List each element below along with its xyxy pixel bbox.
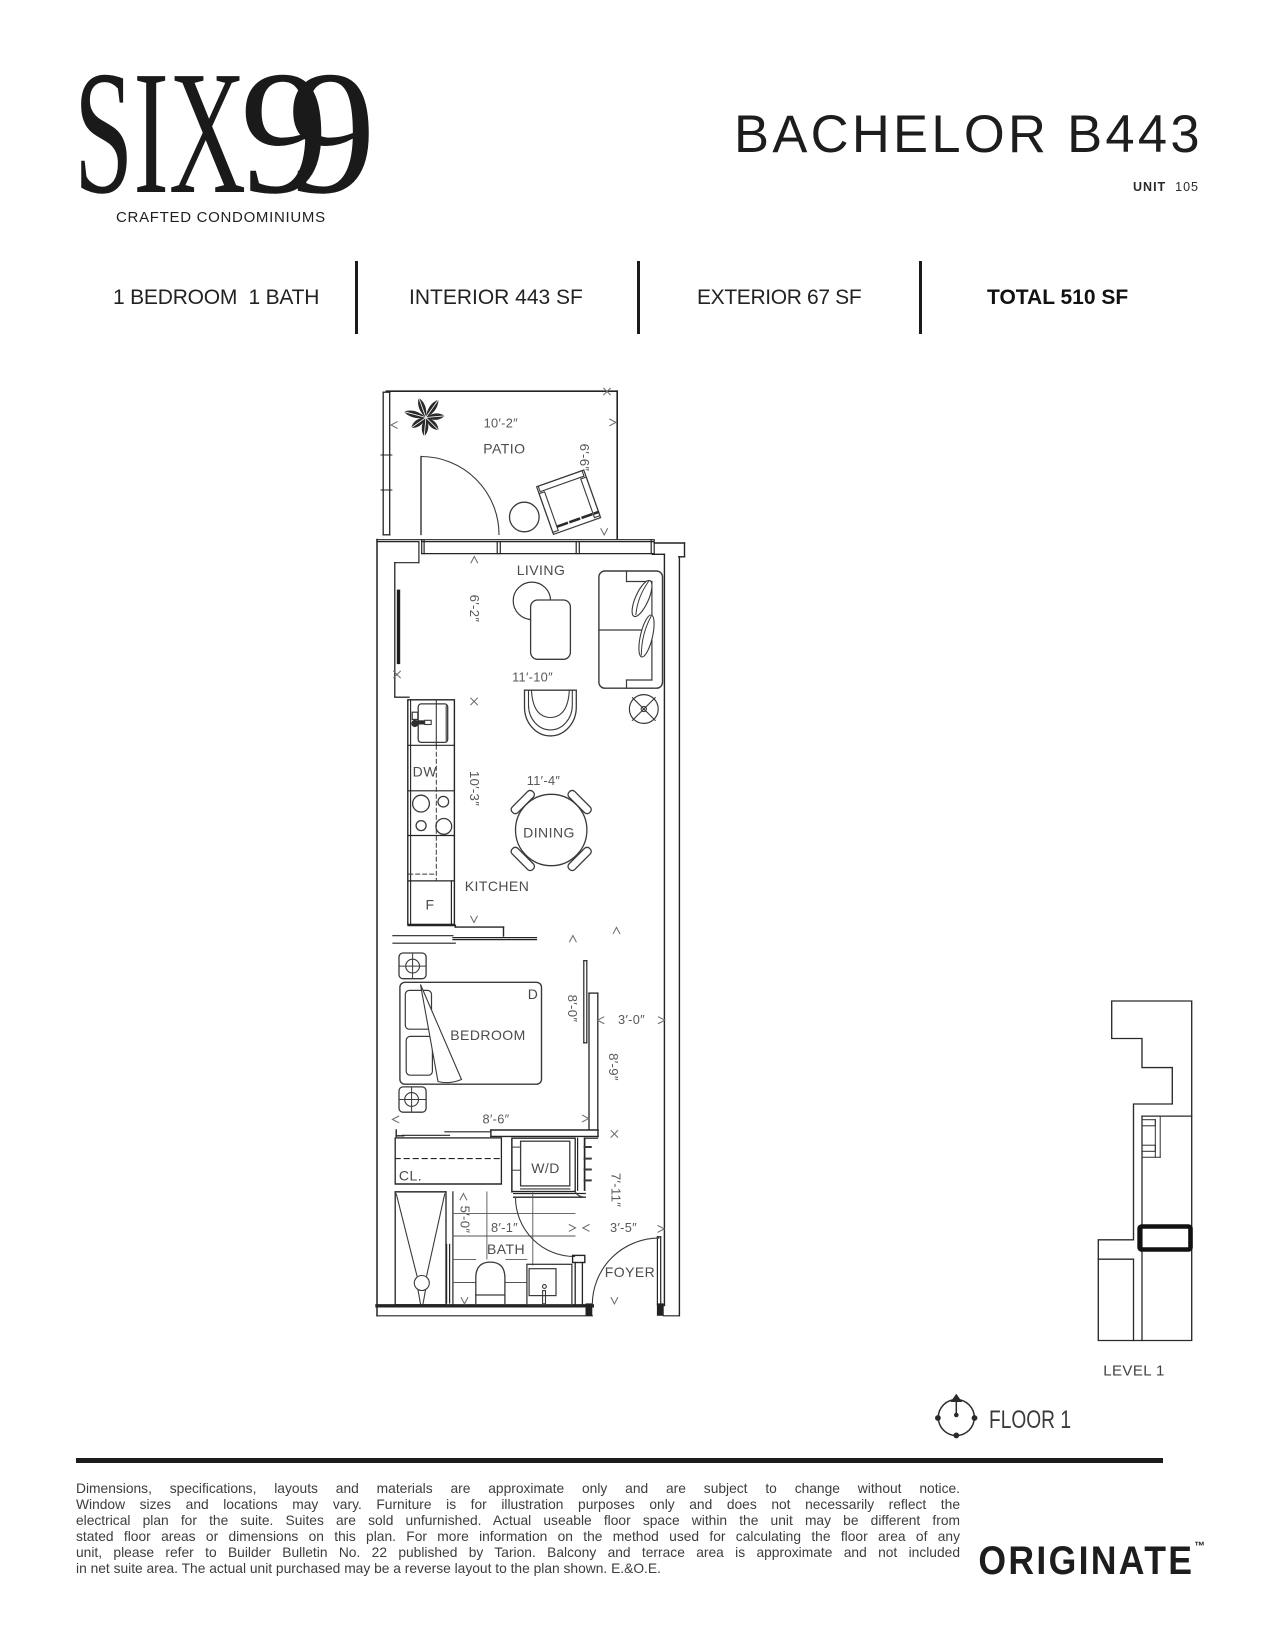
svg-text:FLOOR 1: FLOOR 1 xyxy=(989,1406,1071,1434)
svg-text:5′-0″: 5′-0″ xyxy=(458,1206,473,1234)
svg-text:BEDROOM: BEDROOM xyxy=(450,1027,526,1043)
svg-text:LEVEL 1: LEVEL 1 xyxy=(1103,1363,1164,1380)
svg-text:D: D xyxy=(528,986,539,1002)
svg-text:10′-2″: 10′-2″ xyxy=(484,416,519,431)
svg-text:8′-6″: 8′-6″ xyxy=(483,1112,510,1127)
svg-text:F: F xyxy=(425,897,434,913)
svg-text:LIVING: LIVING xyxy=(517,562,566,578)
svg-text:6′-2″: 6′-2″ xyxy=(467,595,482,623)
svg-text:6′-6″: 6′-6″ xyxy=(577,444,592,472)
svg-text:DINING: DINING xyxy=(523,825,575,841)
svg-text:10′-3″: 10′-3″ xyxy=(467,771,482,806)
svg-text:DW: DW xyxy=(413,764,438,780)
svg-text:BATH: BATH xyxy=(487,1241,525,1257)
svg-text:11′-10″: 11′-10″ xyxy=(512,670,553,685)
svg-text:3′-5″: 3′-5″ xyxy=(610,1220,637,1235)
svg-text:7′-11″: 7′-11″ xyxy=(609,1173,624,1207)
svg-text:8′-1″: 8′-1″ xyxy=(491,1220,518,1235)
svg-text:PATIO: PATIO xyxy=(483,441,525,457)
svg-text:W/D: W/D xyxy=(531,1160,560,1176)
svg-text:FOYER: FOYER xyxy=(605,1264,655,1280)
svg-text:CL.: CL. xyxy=(399,1168,422,1184)
svg-text:8′-0″: 8′-0″ xyxy=(565,995,580,1023)
svg-text:11′-4″: 11′-4″ xyxy=(527,773,561,788)
svg-text:8′-9″: 8′-9″ xyxy=(606,1053,621,1081)
svg-text:KITCHEN: KITCHEN xyxy=(465,878,530,894)
svg-text:3′-0″: 3′-0″ xyxy=(618,1012,645,1027)
